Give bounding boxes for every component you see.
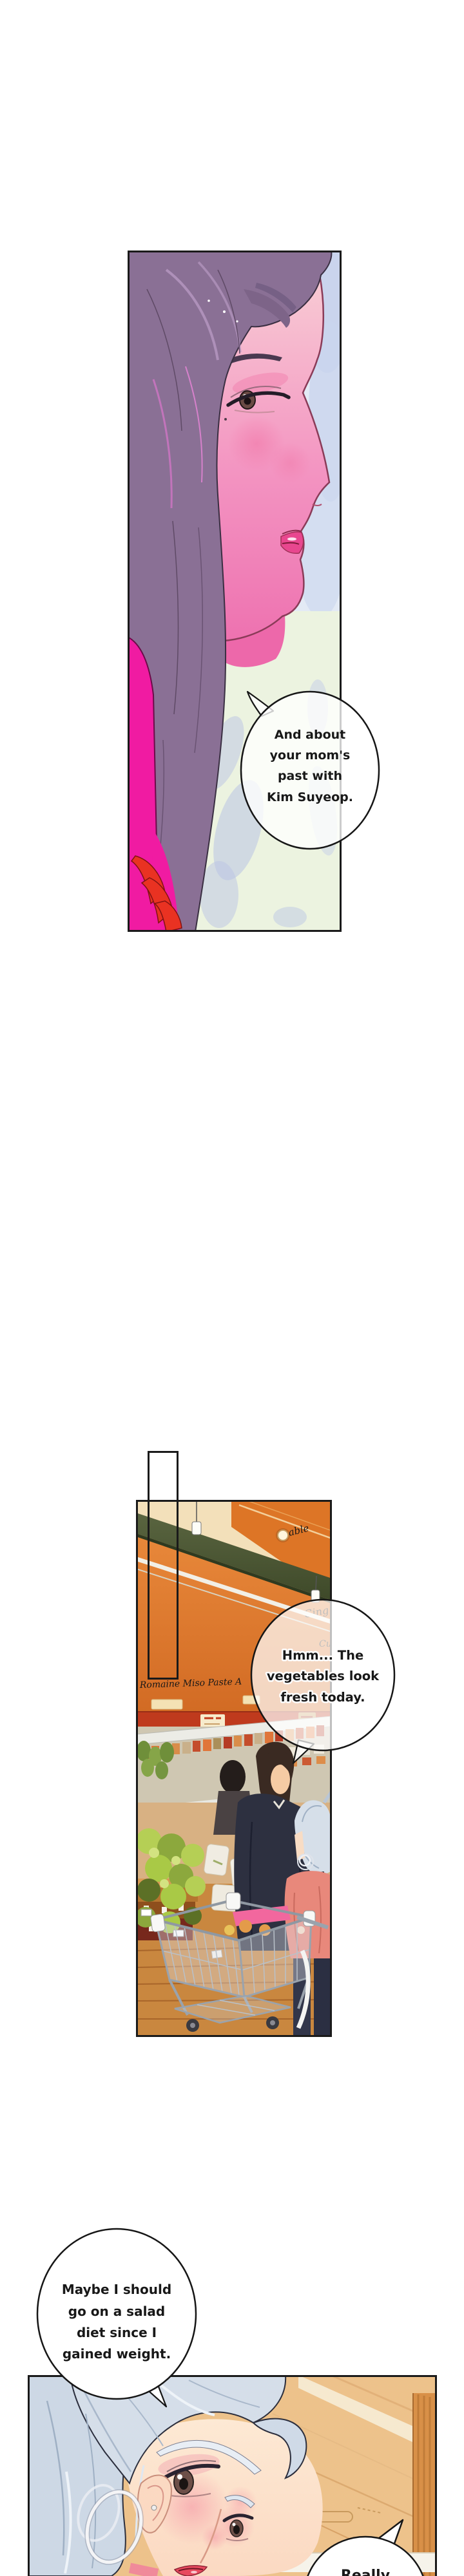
- bubble2-line: Hmm... The: [282, 1648, 363, 1663]
- shelf-label: [151, 1700, 182, 1709]
- wood-slats: [413, 2393, 437, 2576]
- bubble1-line: And about: [275, 728, 346, 742]
- bubble2-line: fresh today.: [280, 1690, 365, 1705]
- speech-bubble-1: And about your mom's past with Kim Suyeo…: [232, 676, 387, 869]
- bubble1-line: your mom's: [270, 748, 351, 762]
- downlight: [278, 1530, 288, 1540]
- beauty-mark: [224, 418, 227, 421]
- hanging-lamp: [192, 1522, 201, 1535]
- lettuce-display: [136, 1828, 206, 1937]
- bubble1-line: past with: [278, 769, 342, 783]
- empty-rectangle-outline: [148, 1451, 179, 1680]
- speech-bubble-2: Hmm... The vegetables look fresh today.: [248, 1597, 403, 1777]
- bubble4-line: Really: [341, 2568, 390, 2576]
- ear-stud: [151, 2505, 157, 2510]
- bubble2-line: vegetables look: [267, 1669, 380, 1683]
- bubble1-line: Kim Suyeop.: [267, 790, 353, 804]
- cart-corner-cap: [150, 1914, 165, 1933]
- bubble3-line: Maybe I should: [62, 2282, 171, 2297]
- comic-page: And about your mom's past with Kim Suyeo…: [0, 0, 464, 2576]
- speech-bubble-3: Maybe I should go on a salad diet since …: [26, 2221, 219, 2414]
- price-tag: [141, 1909, 151, 1916]
- bubble3-line: diet since I: [77, 2325, 157, 2340]
- bubble3-line: go on a salad: [68, 2304, 166, 2319]
- cart-corner-cap: [226, 1893, 240, 1909]
- bubble3-line: gained weight.: [63, 2346, 171, 2362]
